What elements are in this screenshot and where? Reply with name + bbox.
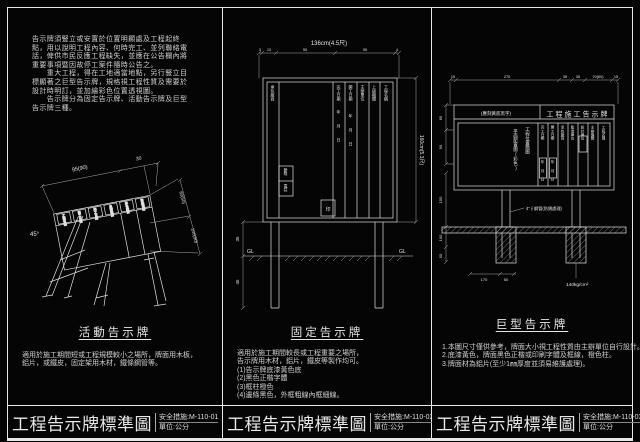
table-col-header: 主辦機關 (590, 125, 595, 141)
notes-movable-sign: 適用於施工期間短或工程規模較小之場所，牌面用木板， 鋁片，或鐵皮，固定架用木材，… (22, 352, 216, 369)
table-cell: 聯絡 (283, 167, 288, 176)
title-block: 工程告示牌標準圖 安全措施:M-110-01 單位:公分 (8, 405, 222, 438)
table-col-header: 工程名稱 (601, 126, 606, 141)
sheet-meta: 安全措施:M-110-01 單位:公分 (155, 413, 218, 432)
dim-label: 100(90) (190, 227, 199, 244)
sheet-code: 安全措施:M-110-02 (374, 413, 433, 423)
notes-fixed-sign: 適用於施工期間較長或工程重要之場所， 告示牌用木材，鋁片，鐵皮等製作均可。 (1… (237, 350, 425, 400)
table-col-header: 工程名稱 (384, 85, 389, 102)
dim-seg: 55 (363, 48, 367, 52)
stamp-cell: 印 (325, 206, 330, 213)
pipe-note: 4"∮鋼管(防銹處理) (526, 205, 563, 212)
dim-label: 90 (438, 144, 443, 149)
top-dimension (257, 51, 401, 78)
note-line: (2)黑色正楷字體 (237, 375, 425, 383)
dim-seg: 35 (563, 75, 567, 79)
side-dimensions (241, 76, 418, 310)
table-col-header: 主辦單位 (361, 84, 366, 101)
fixed-sign-legs (243, 222, 413, 308)
aframe-board: 工程名稱 開工日期 完工日期 主辦機關 承包廠商 聯絡電話 (54, 195, 161, 270)
giant-sign-posts (442, 190, 626, 263)
dim-label: 45 (235, 279, 240, 285)
dim-label: 160cm(5.3尺) (418, 135, 424, 166)
big-cell-text: 平面配置圖(彩色) (513, 129, 519, 171)
table-col-header: 開工日期 (550, 125, 555, 141)
cad-sheet: 告示牌須豎立或安置於位置明顯處及工程起終 點，用以說明工程內容、何時完工、並列聯… (0, 0, 640, 442)
strength-note: 140kg/cm² (566, 282, 589, 288)
table-col-header: 承包廠商 (271, 84, 276, 102)
note-line: (4)邊條黑色，外框粗線內框細線。 (237, 392, 425, 400)
dim-label: 136cm(4.5尺) (311, 40, 347, 47)
dim-label: 170 (481, 277, 488, 282)
note-line: 2.底漆黃色，牌面黑色正楷或印刷字體及框線，橙色柱。 (442, 352, 626, 360)
dim-seg: 55 (303, 48, 307, 52)
table-col-header: 上級機關 (372, 84, 377, 102)
note-line: 3.牌面材為鋁片(至少1㎜厚度並須易維護處理)。 (442, 361, 626, 369)
dim-label: 50 (438, 253, 443, 258)
sheet-meta: 安全措施:M-110-02 單位:公分 (370, 413, 433, 432)
gl-label: GL (399, 249, 406, 255)
dim-seg: 70(60) (593, 75, 605, 79)
dim-label: 60(50) (178, 191, 186, 205)
date-column: 年月日 (550, 159, 555, 186)
dim-label: 50 (504, 277, 509, 282)
header-note: (應刻黃底黑字) (481, 110, 511, 117)
caption-giant-sign: 巨型告示牌 (432, 316, 632, 332)
date-column: 年月日 (337, 109, 342, 152)
fixed-sign-drawing: 136cm(4.5尺) 3 13 55 55 4 承包廠商 完工日期 開工日期 (223, 8, 431, 406)
angle-label: 45° (30, 232, 40, 238)
note-line: 鋁片，或鐵皮，固定架用木材，鐵條鋼管等。 (22, 360, 216, 368)
dim-seg: 3 (259, 48, 261, 52)
dim-seg: 35 (576, 75, 580, 79)
panel-movable-sign: 告示牌須豎立或安置於位置明顯處及工程起終 點，用以說明工程內容、何時完工、並列聯… (8, 8, 223, 438)
movable-sign-drawing: 工程名稱 開工日期 完工日期 主辦機關 承包廠商 聯絡電話 (8, 8, 222, 406)
dim-label: 35 (235, 236, 240, 242)
title-block: 工程告示牌標準圖 安全措施:M-110-03 單位:公分 (432, 405, 632, 438)
panel-fixed-sign: 136cm(4.5尺) 3 13 55 55 4 承包廠商 完工日期 開工日期 (223, 8, 432, 438)
sheet-title: 工程告示牌標準圖 (436, 410, 576, 435)
dim-seg: 270 (504, 75, 510, 79)
note-line: 告示牌用木材，鋁片，鐵皮等製作均可。 (237, 358, 425, 366)
panel-giant-sign: 15 270 35 35 70(60) 15 (應刻黃底黑字) 工程施工告示牌 (432, 8, 632, 438)
table-col-header: 完工日期 (540, 125, 545, 141)
board-title: 工程施工告示牌 (547, 110, 610, 119)
sheet-unit: 單位:公分 (583, 423, 640, 432)
dim-seg: 4 (396, 48, 398, 52)
table-col-header: 監造單位 (570, 125, 575, 140)
date-column: 年月日 (540, 159, 545, 186)
table-col-header: 開工日期 (349, 84, 354, 102)
note-line: (1)告示牌底漆黃色底 (237, 367, 425, 375)
dim-seg: 15 (451, 75, 455, 79)
dim-label: 65 (438, 115, 443, 120)
table-col-header: 承包廠商 (560, 125, 565, 141)
sheet-code: 安全措施:M-110-03 (583, 413, 640, 423)
sheet-border: 告示牌須豎立或安置於位置明顯處及工程起終 點，用以說明工程內容、何時完工、並列聯… (7, 7, 633, 441)
dim-label: 30 (136, 156, 143, 163)
aframe-legs (42, 216, 166, 306)
sheet-title: 工程告示牌標準圖 (12, 410, 152, 435)
sheet-meta: 安全措施:M-110-03 單位:公分 (579, 413, 640, 432)
top-dimension (448, 78, 620, 104)
dim-label: 150 (438, 196, 443, 203)
sheet-unit: 單位:公分 (374, 423, 433, 432)
dim-label: 95(90) (71, 165, 88, 174)
note-line: (3)框柱橙色 (237, 384, 425, 392)
sheet-code: 安全措施:M-110-01 (159, 413, 218, 423)
dim-label: 100 (438, 234, 443, 241)
date-column: 年月日 (349, 113, 354, 156)
notes-giant-sign: 1.本圖尺寸僅供參考，牌面大小視工程性質由主辦單位自行設計。 2.底漆黃色，牌面… (442, 344, 626, 369)
title-block: 工程告示牌標準圖 安全措施:M-110-02 單位:公分 (223, 405, 431, 438)
dim-seg: 13 (267, 48, 271, 52)
big-cell-text: 工程位置簡圖 (525, 127, 531, 156)
table-col-header: 設計單位 (580, 125, 585, 140)
caption-movable-sign: 活動告示牌 (8, 324, 222, 340)
sheet-unit: 單位:公分 (159, 423, 218, 432)
sheet-title: 工程告示牌標準圖 (227, 410, 367, 435)
table-cell: 電話 (283, 183, 288, 192)
caption-fixed-sign: 固定告示牌 (223, 324, 431, 340)
dim-seg: 15 (614, 75, 618, 79)
table-col-header: 完工日期 (337, 84, 342, 102)
gl-label: GL (247, 249, 254, 255)
